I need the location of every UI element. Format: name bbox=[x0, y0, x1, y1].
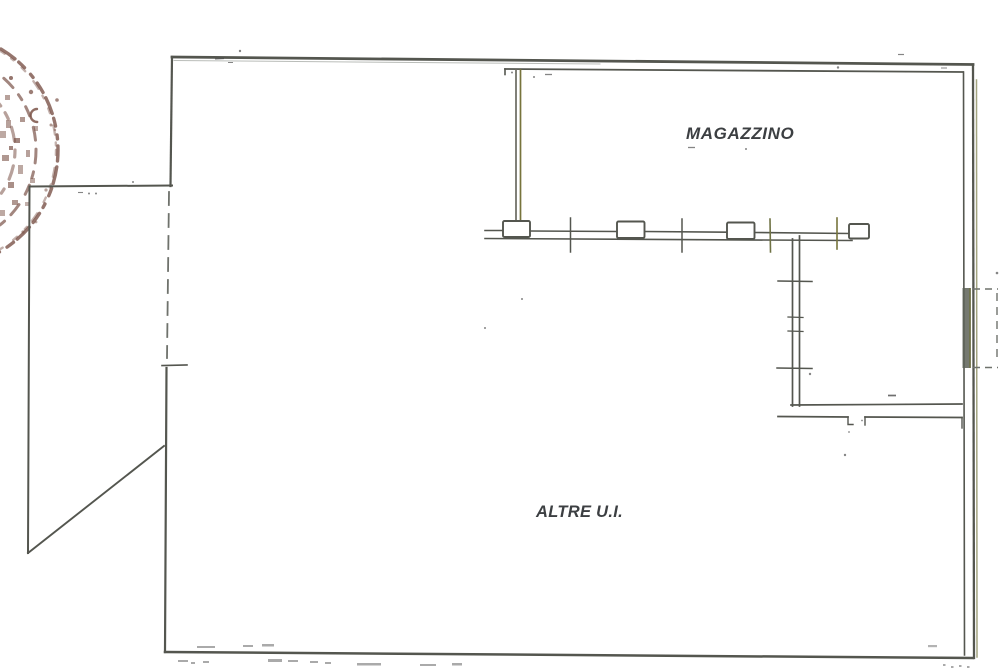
room-label-magazzino: MAGAZZINO bbox=[686, 124, 794, 144]
partition-walls bbox=[777, 236, 962, 428]
pillared-wall bbox=[485, 218, 869, 252]
room-label-altre-ui: ALTRE U.I. bbox=[536, 503, 623, 522]
floorplan-drawing bbox=[0, 0, 1000, 672]
magazzino-walls bbox=[505, 69, 963, 226]
outer-walls bbox=[28, 57, 977, 658]
east-window bbox=[963, 288, 999, 368]
floorplan-canvas: MAGAZZINO ALTRE U.I. bbox=[0, 0, 1000, 672]
scan-artifacts bbox=[78, 50, 998, 456]
